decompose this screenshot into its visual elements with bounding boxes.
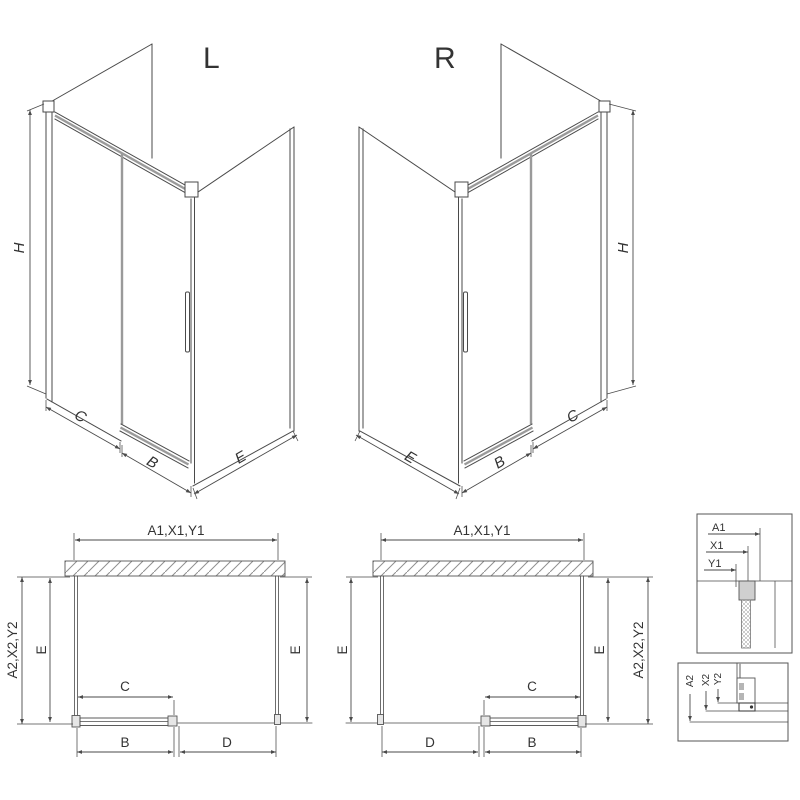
glass-section-strip [742,600,751,648]
dim-label-a2: A2,X2,Y2 [5,621,20,678]
left-side-panel [46,44,152,402]
dim-label-b: B [144,453,161,473]
dim-label-a2: A2,X2,Y2 [631,621,646,678]
dim-label-a2: A2 [685,674,696,687]
technical-drawing-page: L [0,0,800,800]
dim-label-d: D [425,735,435,750]
fixing-dot [750,705,753,708]
door-rail-plan [72,715,281,728]
dim-label-x2: X2 [701,673,712,686]
door-rail-plan [378,715,587,728]
door-handle [186,292,190,352]
rail-end-cap [455,182,468,197]
dim-label-e-right: E [592,645,607,654]
dim-label-y2: Y2 [713,672,724,685]
iso-view-right: R [355,42,636,499]
dim-label-e: E [232,447,250,467]
top-rail [455,112,598,197]
dim-label-h: H [615,242,632,253]
wall-profile-section [739,581,755,600]
door-end-cap [481,716,490,726]
corner-profile [275,715,281,725]
dim-label-e-left: E [335,645,350,654]
dim-label-c: C [71,406,89,426]
iso-view-left: L [11,42,298,499]
dim-label-y1: Y1 [708,558,721,570]
dim-label-x1: X1 [710,540,723,552]
dim-label-b: B [120,735,129,750]
sliding-door-left-variant [47,153,195,483]
detail-frame [678,663,788,741]
wall-profile-cap-left [43,101,54,112]
iso-right-title: R [434,42,456,75]
dim-label-c: C [527,679,537,694]
corner-profile [378,715,384,725]
iso-right-dimensions: H C B E [355,104,636,499]
wall-section-hatched [65,561,285,576]
dim-label-e-right: E [288,645,303,654]
dim-label-d: D [222,735,232,750]
door-handle [464,292,468,352]
detail-bottom-rail: A2 X2 Y2 [678,663,788,741]
dim-label-a1: A1 [712,522,725,534]
right-side-panel [501,44,607,402]
dim-label-h: H [11,242,28,253]
wall-profile [72,716,80,728]
glass-panels-plan [75,576,313,723]
plan-view-left: A1,X1,Y1 A2,X2,Y2 E E C B D [5,523,312,757]
iso-left-dimensions: H C B E [11,104,298,499]
dim-label-b: B [527,735,536,750]
wall-section-hatched [373,561,593,576]
iso-left-title: L [203,42,220,75]
gasket-mark [739,683,744,690]
plan-view-right: A1,X1,Y1 A2,X2,Y2 E E C D B [335,523,653,757]
gasket-mark [739,693,744,700]
dim-label-a1: A1,X1,Y1 [147,523,204,538]
dim-label-e-left: E [34,645,49,654]
dim-label-c: C [564,406,582,426]
detail-wall-profile: A1 X1 Y1 [697,514,792,653]
dim-label-a1: A1,X1,Y1 [453,523,510,538]
wall-profile-cap-right [599,101,610,112]
sliding-door-right-variant [459,153,607,483]
rail-end-cap [185,182,198,197]
top-rail [55,112,198,197]
glass-panels-plan [346,576,584,723]
door-end-cap [168,716,177,726]
left-side-panel [359,127,460,486]
door-right-edge [191,197,195,483]
door-left-edge [459,197,463,483]
dim-label-c: C [120,679,130,694]
drawing-canvas: L [0,0,800,800]
dim-label-b: B [491,453,508,473]
wall-profile [578,716,586,728]
right-side-panel [193,127,294,486]
dim-label-e: E [402,448,420,468]
